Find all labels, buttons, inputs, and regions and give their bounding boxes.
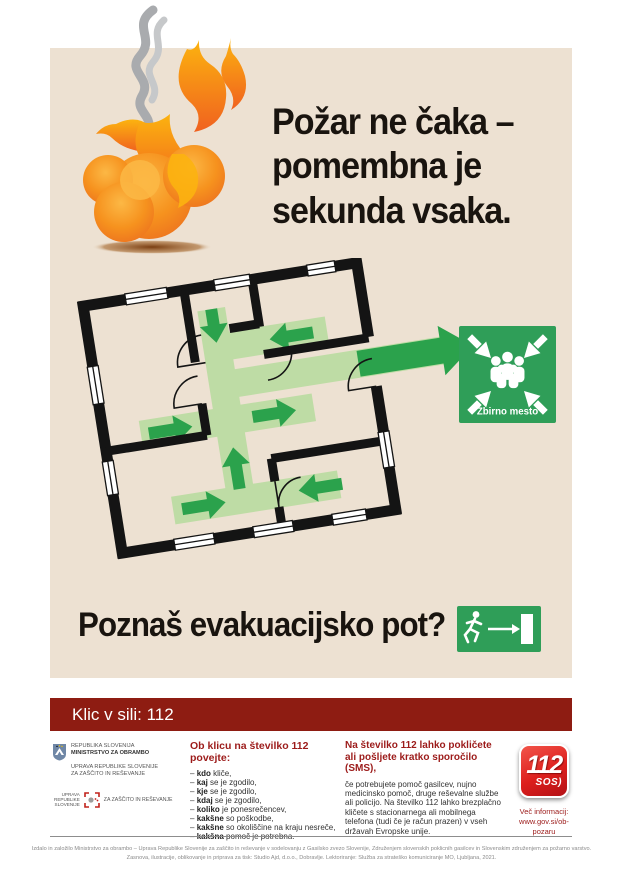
logo-112-number: 112 bbox=[521, 751, 567, 780]
emergency-call-bar: Klic v sili: 112 bbox=[50, 698, 572, 731]
footer-info-section: REPUBLIKA SLOVENIJA MINISTRSTVO ZA OBRAM… bbox=[50, 740, 572, 840]
list-item: – kakšna pomoč je potrebna. bbox=[190, 833, 342, 841]
logo-112-column: 112 SOS) Več informacij: www.gov.si/ob-p… bbox=[516, 744, 572, 837]
gov-line-1: REPUBLIKA SLOVENIJA bbox=[71, 743, 149, 749]
fire-safety-poster: Požar ne čaka – pomembna je sekunda vsak… bbox=[0, 0, 623, 883]
question-headline: Poznaš evakuacijsko pot? bbox=[78, 606, 445, 645]
main-headline: Požar ne čaka – pomembna je sekunda vsak… bbox=[272, 100, 514, 233]
assembly-point-sign: Zbirno mesto bbox=[459, 326, 556, 423]
fine-print: Izdalo in založilo Ministrstvo za obramb… bbox=[30, 845, 593, 863]
fine-print-line-2: Zasnova, ilustracije, oblikovanje in pri… bbox=[30, 854, 593, 863]
flames-icon bbox=[83, 38, 246, 242]
call-instructions-column: Ob klicu na številko 112 povejte: – kdo … bbox=[190, 740, 342, 842]
sms-info-column: Na številko 112 lahko pokličete ali pošl… bbox=[345, 740, 505, 836]
coat-of-arms-icon bbox=[52, 743, 67, 761]
logo-112: 112 SOS) bbox=[519, 744, 569, 798]
call-instructions-heading: Ob klicu na številko 112 povejte: bbox=[190, 740, 342, 764]
acr-badge-text: UPRAVA REPUBLIKE SLOVENIJE bbox=[54, 792, 80, 808]
sms-info-body: če potrebujete pomoč gasilcev, nujno med… bbox=[345, 780, 505, 837]
evacuation-path bbox=[123, 273, 469, 527]
government-logos: REPUBLIKA SLOVENIJA MINISTRSTVO ZA OBRAM… bbox=[52, 743, 188, 808]
emergency-call-label: Klic v sili: 112 bbox=[72, 705, 174, 725]
fine-print-line-1: Izdalo in založilo Ministrstvo za obramb… bbox=[30, 845, 593, 854]
more-info-label: Več informacij: bbox=[516, 807, 572, 817]
footer-divider bbox=[50, 836, 572, 837]
call-instructions-list: – kdo kliče, – kaj se je zgodilo, – kje … bbox=[190, 770, 342, 841]
evacuation-floor-plan bbox=[66, 258, 486, 583]
gov-line-2: MINISTRSTVO ZA OBRAMBO bbox=[71, 750, 149, 756]
sms-info-heading: Na številko 112 lahko pokličete ali pošl… bbox=[345, 740, 505, 775]
acr-badge-icon bbox=[84, 792, 100, 808]
smoke-icon bbox=[136, 10, 164, 128]
more-info-url: www.gov.si/ob-pozaru bbox=[516, 817, 572, 837]
acr-badge-label: ZA ZAŠČITO IN REŠEVANJE bbox=[104, 797, 173, 803]
fire-smoke-illustration bbox=[52, 4, 247, 262]
gov-line-4: ZA ZAŠČITO IN REŠEVANJE bbox=[71, 771, 188, 778]
emergency-exit-sign bbox=[457, 606, 541, 652]
fire-shadow bbox=[92, 240, 212, 254]
exit-door-icon bbox=[521, 614, 533, 644]
assembly-sign-label: Zbirno mesto bbox=[477, 406, 538, 417]
